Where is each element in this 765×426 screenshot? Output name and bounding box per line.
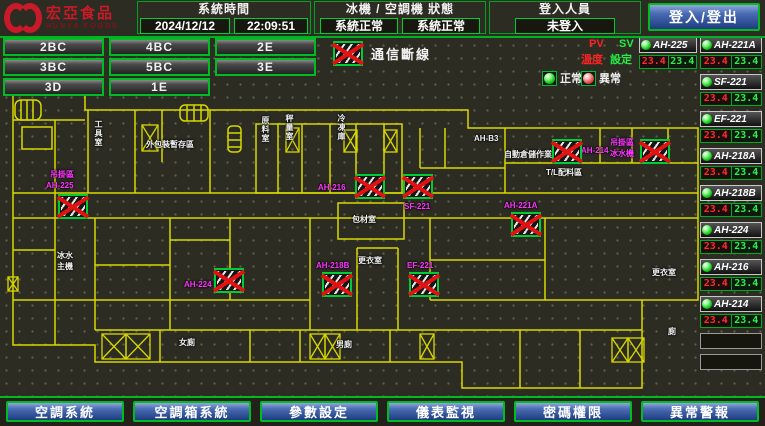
- sv-value: 23.4: [732, 204, 762, 216]
- system-time-section: 系統時間 2024/12/12 22:09:51: [137, 1, 311, 34]
- bottom-nav-bar: 空調系統空調箱系統參數設定儀表監視密碼權限異常警報: [0, 396, 765, 426]
- ahu-status-value: 系統正常: [402, 18, 480, 34]
- equipment-name-row: EF-221: [700, 111, 762, 127]
- abnormal-led-icon: [581, 71, 596, 86]
- sv-value: 23.4: [732, 315, 762, 327]
- sv-value: 23.4: [732, 278, 762, 290]
- pv-header: PV: [589, 38, 604, 50]
- pv-value: 23.4: [701, 315, 732, 327]
- system-time-label: 系統時間: [138, 2, 310, 17]
- floor-select-button[interactable]: 4BC: [109, 38, 210, 56]
- equipment-unit[interactable]: AH-214 23.4 23.4: [700, 296, 762, 328]
- equipment-name: AH-224: [714, 225, 748, 236]
- shaft-icon: [8, 125, 644, 362]
- equipment-name: AH-218A: [714, 151, 756, 162]
- equipment-unit[interactable]: AH-216 23.4 23.4: [700, 259, 762, 291]
- logo-icon: [18, 3, 42, 33]
- equipment-name-row: AH-224: [700, 222, 762, 238]
- equipment-name-row: AH-218B: [700, 185, 762, 201]
- pv-value: 23.4: [640, 56, 669, 68]
- equipment-unit[interactable]: SF-221 23.4 23.4: [700, 74, 762, 106]
- status-led-icon: [702, 40, 712, 50]
- equipment-values: 23.4 23.4: [700, 314, 762, 328]
- status-led-icon: [702, 151, 712, 161]
- equipment-unit[interactable]: EF-221 23.4 23.4: [700, 111, 762, 143]
- sv-value: 23.4: [732, 167, 762, 179]
- equipment-name-row: AH-216: [700, 259, 762, 275]
- equipment-unit[interactable]: AH-218A 23.4 23.4: [700, 148, 762, 180]
- nav-button[interactable]: 空調箱系統: [133, 401, 251, 422]
- status-led-icon: [702, 114, 712, 124]
- brand-name-en: HUNYA FOODS: [46, 23, 119, 30]
- sv-value: 23.4: [669, 56, 697, 68]
- comm-fail-legend: 通信斷線: [333, 41, 431, 66]
- floor-select-button[interactable]: 2E: [215, 38, 316, 56]
- equipment-name-row: AH-214: [700, 296, 762, 312]
- equipment-name: AH-225: [653, 40, 687, 51]
- equipment-name: AH-218B: [714, 188, 756, 199]
- comm-fail-label: 通信斷線: [371, 44, 431, 63]
- floor-select-button[interactable]: 2BC: [3, 38, 104, 56]
- sv-value: 23.4: [732, 130, 762, 142]
- floor-select-button[interactable]: 3E: [215, 58, 316, 76]
- header-bar: 宏亞食品 HUNYA FOODS 系統時間 2024/12/12 22:09:5…: [0, 0, 765, 38]
- floor-select-button[interactable]: 3D: [3, 78, 104, 96]
- pv-value: 23.4: [701, 241, 732, 253]
- pv-value: 23.4: [701, 130, 732, 142]
- equipment-name: AH-221A: [714, 40, 756, 51]
- empty-equipment-slot: [700, 354, 762, 370]
- equipment-values: 23.4 23.4: [700, 166, 762, 180]
- empty-equipment-slot: [700, 333, 762, 349]
- equipment-name: AH-214: [714, 299, 748, 310]
- stairs-icon: [15, 100, 241, 152]
- equipment-values: 23.4 23.4: [700, 55, 762, 69]
- equipment-column-right: AH-221A 23.4 23.4 SF-221 23.4 23.4 EF-22…: [700, 37, 762, 370]
- normal-label: 正常: [560, 70, 582, 86]
- status-led-icon: [702, 262, 712, 272]
- nav-button[interactable]: 儀表監視: [387, 401, 505, 422]
- comm-fail-icon: [333, 41, 363, 66]
- equipment-column-left: AH-225 23.4 23.4: [639, 37, 697, 69]
- nav-button[interactable]: 參數設定: [260, 401, 378, 422]
- login-label: 登入人員: [490, 2, 640, 17]
- abnormal-label: 異常: [599, 70, 621, 86]
- sv-header: SV: [619, 38, 634, 50]
- login-user-value: 未登入: [515, 18, 615, 34]
- status-led-icon: [702, 77, 712, 87]
- machine-status-section: 冰機 / 空調機 狀態 系統正常 系統正常: [314, 1, 486, 34]
- equipment-name-row: SF-221: [700, 74, 762, 90]
- brand-name: 宏亞食品: [46, 6, 119, 21]
- pv-value: 23.4: [701, 167, 732, 179]
- pv-caption: 溫度: [581, 51, 603, 67]
- equipment-values: 23.4 23.4: [639, 55, 697, 69]
- floorplan-walls: [8, 95, 698, 388]
- normal-led-icon: [542, 71, 557, 86]
- equipment-unit[interactable]: AH-221A 23.4 23.4: [700, 37, 762, 69]
- equipment-name: SF-221: [714, 77, 747, 88]
- login-section: 登入人員 未登入: [489, 1, 641, 34]
- status-led-icon: [641, 40, 651, 50]
- pv-value: 23.4: [701, 204, 732, 216]
- floor-select-button[interactable]: 3BC: [3, 58, 104, 76]
- pv-value: 23.4: [701, 56, 732, 68]
- floor-select-button[interactable]: 1E: [109, 78, 210, 96]
- equipment-unit[interactable]: AH-225 23.4 23.4: [639, 37, 697, 69]
- status-led-icon: [702, 225, 712, 235]
- equipment-values: 23.4 23.4: [700, 277, 762, 291]
- equipment-name: AH-216: [714, 262, 748, 273]
- sv-value: 23.4: [732, 93, 762, 105]
- machine-status-label: 冰機 / 空調機 狀態: [315, 2, 485, 17]
- system-clock-value: 22:09:51: [234, 18, 308, 34]
- pv-value: 23.4: [701, 93, 732, 105]
- brand-logo: 宏亞食品 HUNYA FOODS: [4, 2, 132, 34]
- equipment-values: 23.4 23.4: [700, 203, 762, 217]
- login-logout-button[interactable]: 登入/登出: [648, 3, 760, 31]
- chiller-status-value: 系統正常: [320, 18, 398, 34]
- equipment-name: EF-221: [714, 114, 747, 125]
- equipment-name-row: AH-225: [639, 37, 697, 53]
- normal-legend: 正常: [542, 70, 582, 86]
- equipment-name-row: AH-218A: [700, 148, 762, 164]
- nav-button[interactable]: 密碼權限: [514, 401, 632, 422]
- floor-select-grid: 2BC4BC2E3BC5BC3E3D1E: [3, 38, 321, 96]
- equipment-unit[interactable]: AH-218B 23.4 23.4: [700, 185, 762, 217]
- abnormal-legend: 異常: [581, 70, 621, 86]
- sv-value: 23.4: [732, 56, 762, 68]
- equipment-name-row: AH-221A: [700, 37, 762, 53]
- hatch: [336, 44, 360, 63]
- pv-value: 23.4: [701, 278, 732, 290]
- status-led-icon: [702, 188, 712, 198]
- equipment-values: 23.4 23.4: [700, 92, 762, 106]
- equipment-unit[interactable]: AH-224 23.4 23.4: [700, 222, 762, 254]
- nav-button[interactable]: 空調系統: [6, 401, 124, 422]
- sv-value: 23.4: [732, 241, 762, 253]
- sv-caption: 設定: [610, 51, 632, 67]
- equipment-values: 23.4 23.4: [700, 240, 762, 254]
- status-led-icon: [702, 299, 712, 309]
- hmi-screen: 吊掛區AH-225AH-224AH-216SF-221AH-221AAH-218…: [0, 0, 765, 426]
- equipment-values: 23.4 23.4: [700, 129, 762, 143]
- nav-button[interactable]: 異常警報: [641, 401, 759, 422]
- system-date-value: 2024/12/12: [140, 18, 230, 34]
- floor-select-button[interactable]: 5BC: [109, 58, 210, 76]
